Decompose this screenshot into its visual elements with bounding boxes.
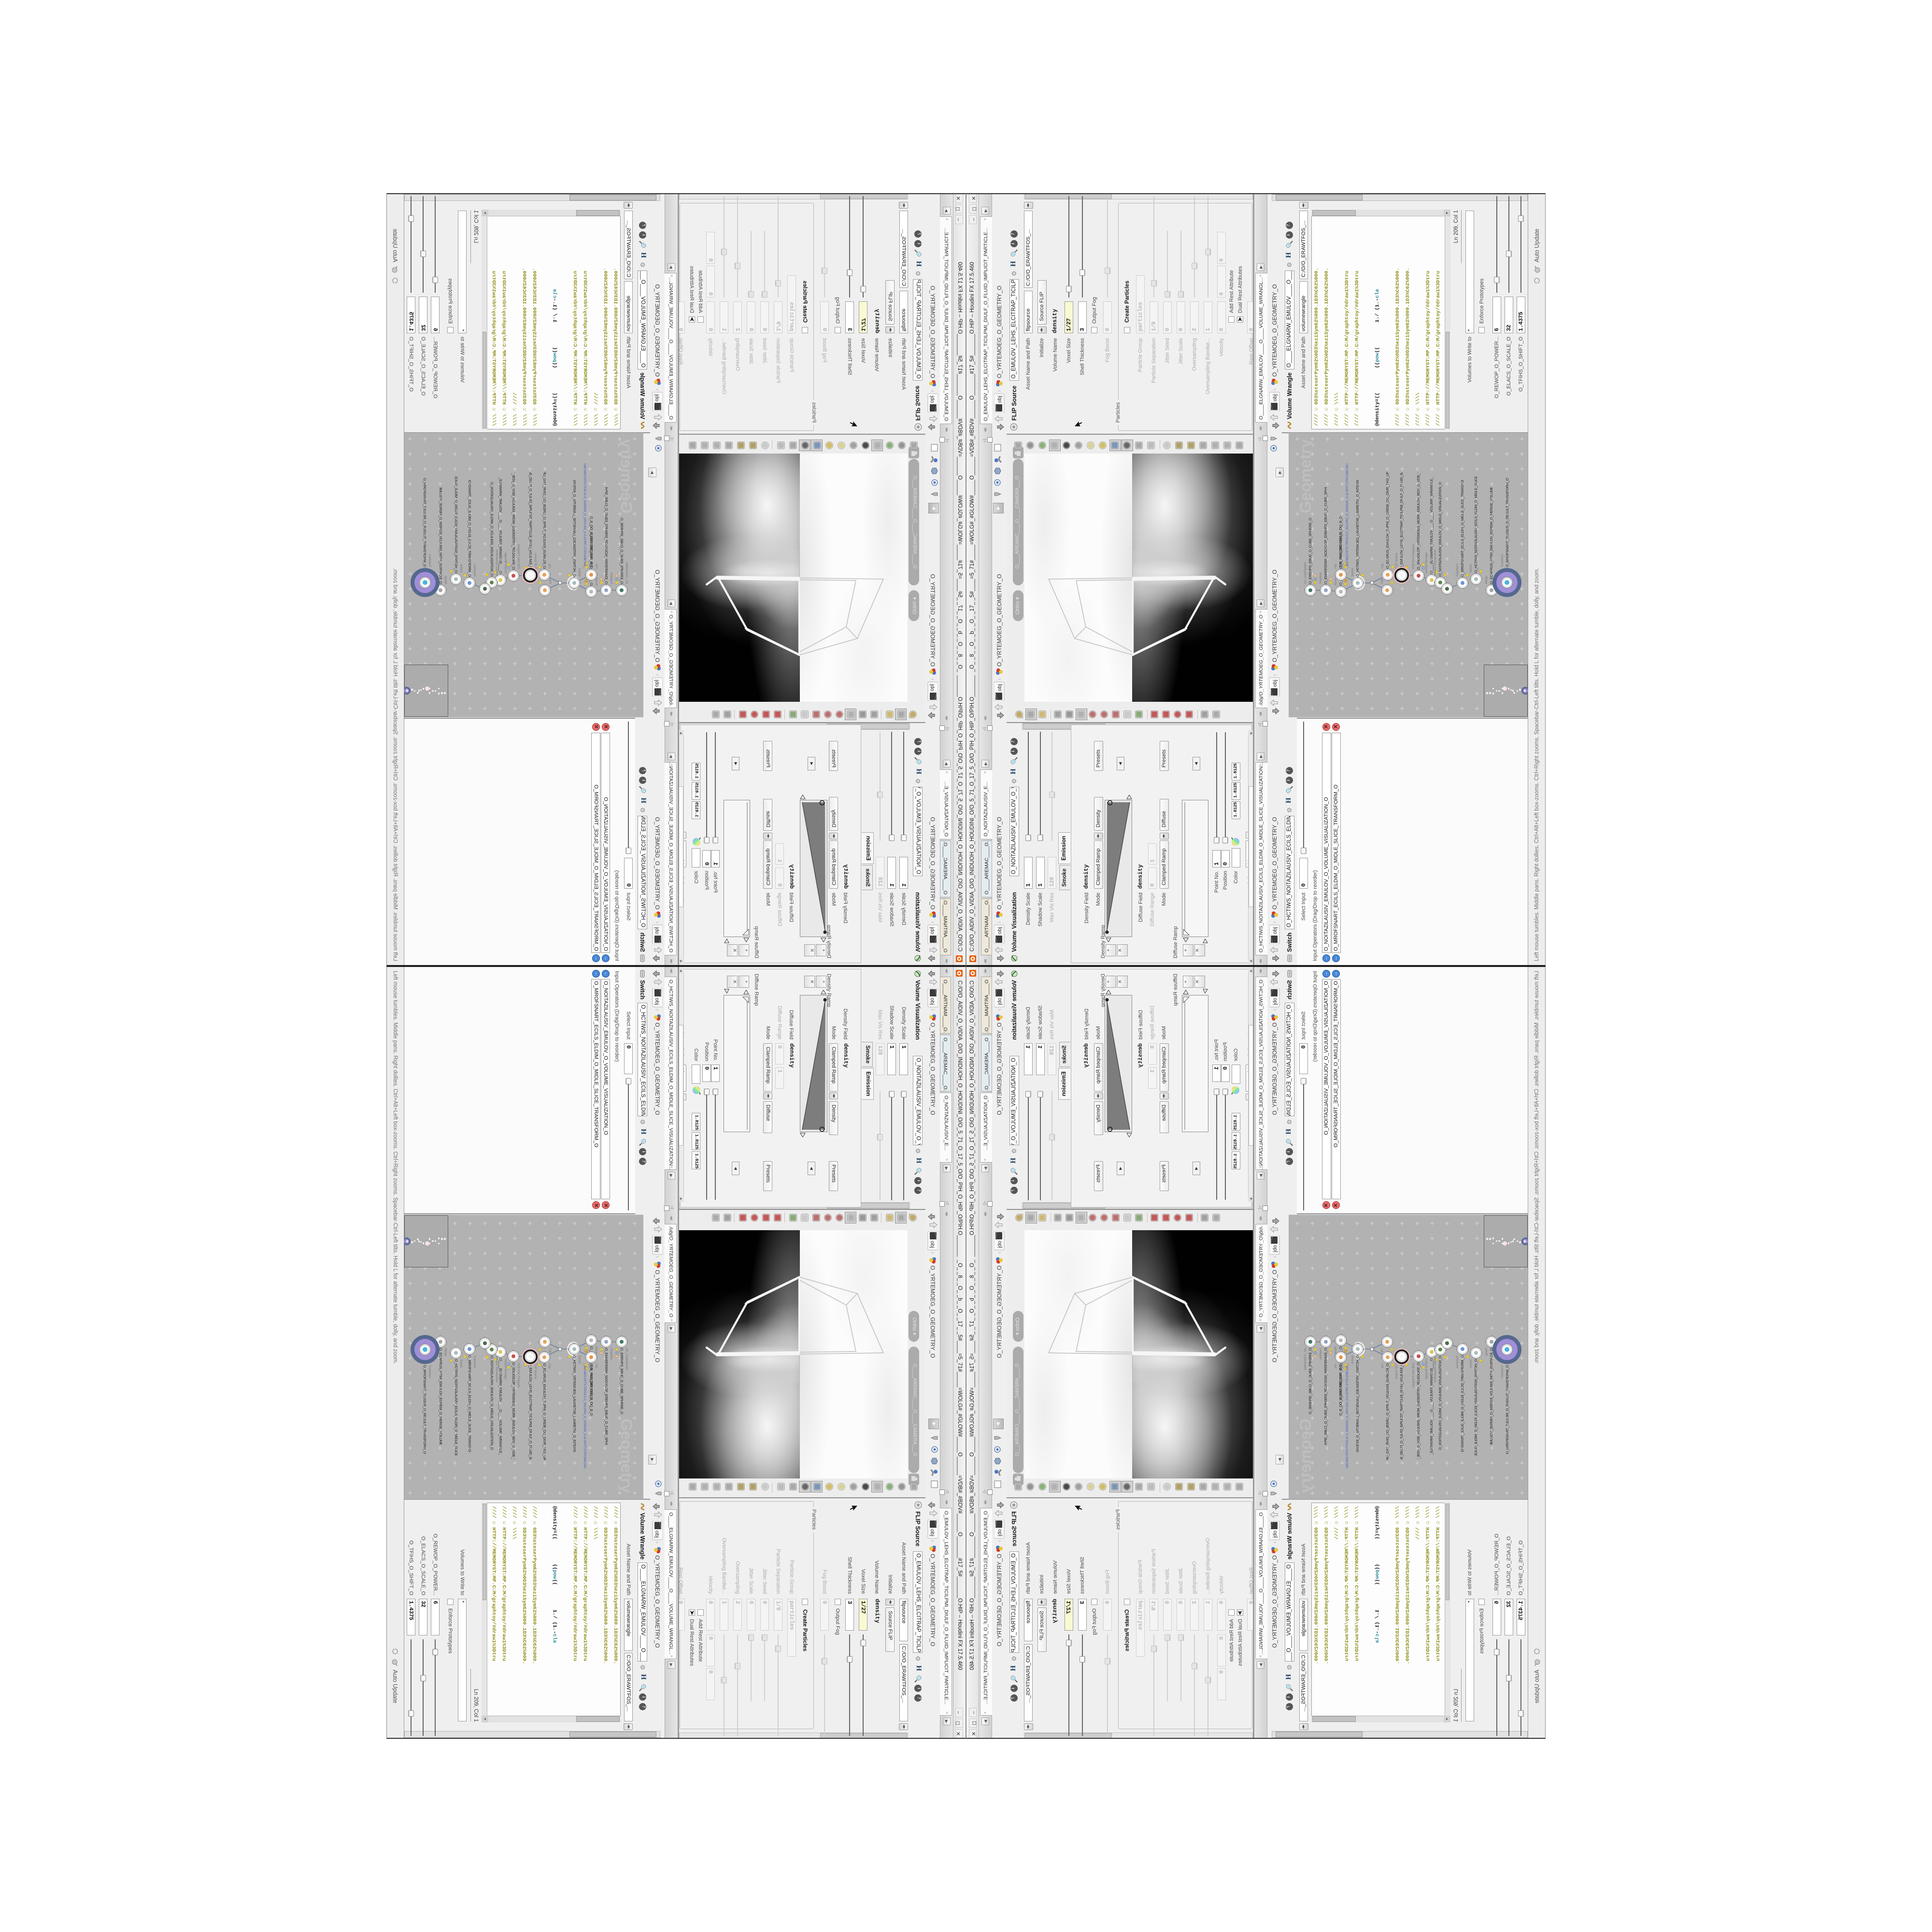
svg-text:obj: obj <box>997 1241 1003 1248</box>
svg-text:obj: obj <box>654 927 660 934</box>
svg-text:obj: obj <box>654 1531 660 1538</box>
svg-text:obj: obj <box>929 998 935 1005</box>
svg-text:obj: obj <box>654 394 660 401</box>
svg-text:obj: obj <box>929 927 935 934</box>
svg-text:obj: obj <box>929 396 935 403</box>
svg-text:obj: obj <box>929 684 935 691</box>
svg-text:obj: obj <box>929 1241 935 1248</box>
svg-text:obj: obj <box>997 1529 1003 1536</box>
svg-text:obj: obj <box>1272 394 1278 401</box>
svg-text:obj: obj <box>1272 680 1278 687</box>
svg-text:obj: obj <box>997 998 1003 1005</box>
svg-text:obj: obj <box>654 1245 660 1252</box>
svg-text:obj: obj <box>997 396 1003 403</box>
svg-text:obj: obj <box>929 1529 935 1536</box>
svg-text:obj: obj <box>1272 1531 1278 1538</box>
svg-text:obj: obj <box>1272 1245 1278 1252</box>
svg-text:obj: obj <box>654 680 660 687</box>
svg-text:obj: obj <box>1272 927 1278 934</box>
svg-text:obj: obj <box>997 927 1003 934</box>
svg-text:obj: obj <box>1272 998 1278 1005</box>
svg-text:obj: obj <box>654 998 660 1005</box>
svg-text:obj: obj <box>997 684 1003 691</box>
